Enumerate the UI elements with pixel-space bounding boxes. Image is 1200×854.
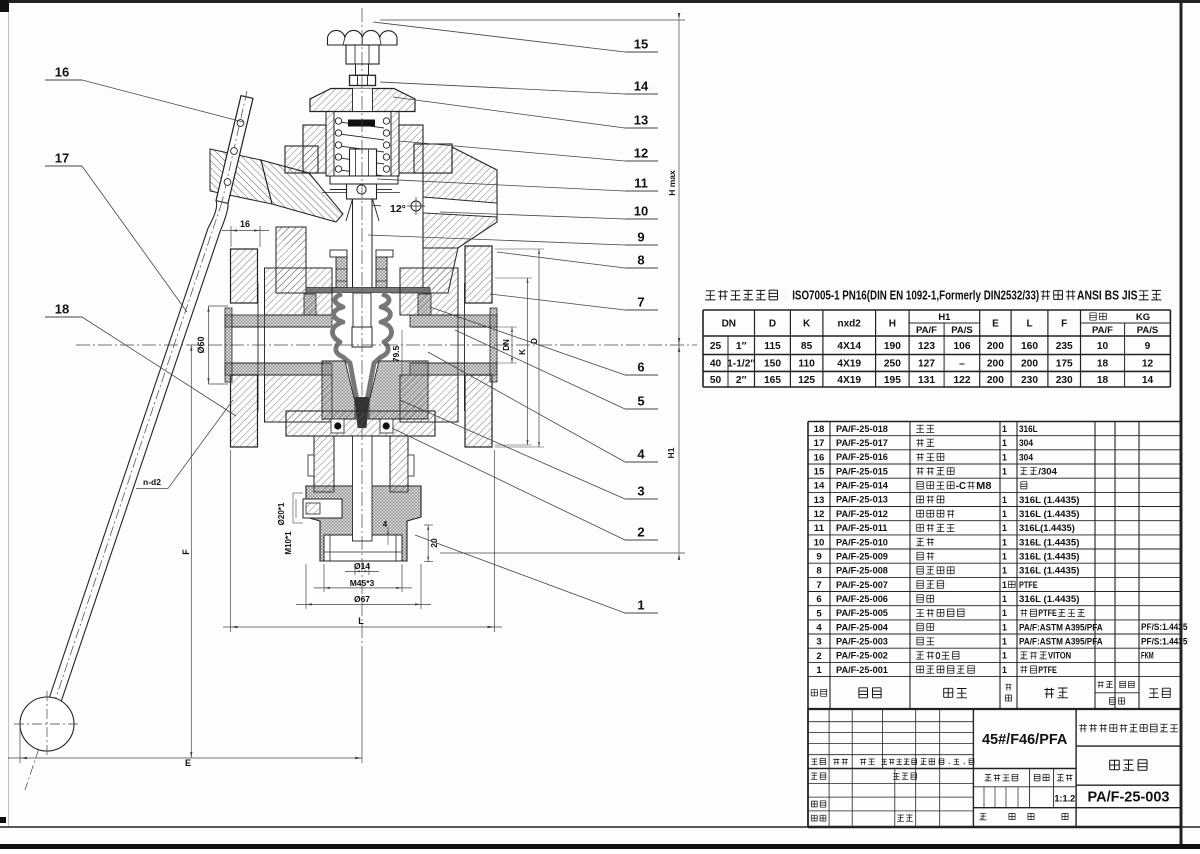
svg-text:85: 85 [801, 341, 813, 352]
svg-text:6: 6 [637, 360, 644, 375]
svg-text:PA/S: PA/S [1137, 325, 1158, 336]
svg-text:131: 131 [918, 375, 935, 386]
svg-text:PA/F-25-006: PA/F-25-006 [836, 594, 888, 604]
svg-text:D: D [769, 319, 776, 330]
svg-text:1: 1 [1002, 579, 1007, 590]
svg-text:1: 1 [1002, 437, 1007, 448]
svg-text:n-d2: n-d2 [143, 477, 161, 487]
svg-text:PA/F-25-014: PA/F-25-014 [836, 481, 889, 491]
svg-text:H1: H1 [938, 312, 951, 323]
svg-text:PA/F-25-013: PA/F-25-013 [836, 495, 888, 505]
svg-text:230: 230 [1021, 375, 1038, 386]
svg-text:PA/F-25-007: PA/F-25-007 [836, 580, 888, 590]
svg-text:16: 16 [240, 219, 250, 229]
svg-text:1: 1 [816, 665, 822, 676]
svg-text:230: 230 [1056, 375, 1073, 386]
svg-text:8: 8 [816, 566, 822, 577]
svg-text:3: 3 [637, 484, 644, 499]
svg-text:E: E [185, 758, 191, 768]
svg-text:PA/F-25-003: PA/F-25-003 [1088, 790, 1170, 806]
svg-text:H max: H max [667, 170, 677, 196]
svg-text:316L (1.4435): 316L (1.4435) [1019, 552, 1080, 562]
svg-text:F: F [1061, 319, 1067, 330]
svg-text:13: 13 [634, 113, 648, 128]
svg-text:L: L [358, 616, 364, 626]
svg-text:9: 9 [816, 552, 821, 563]
svg-text:25: 25 [710, 341, 722, 352]
svg-text:ISO7005-1 PN16(DIN EN 1092-1,F: ISO7005-1 PN16(DIN EN 1092-1,Formerly DI… [792, 289, 1039, 303]
svg-text:1: 1 [1002, 565, 1007, 576]
svg-text:4X14: 4X14 [837, 341, 861, 352]
svg-text:PA/F-25-001: PA/F-25-001 [836, 665, 888, 675]
svg-text:K: K [803, 319, 811, 330]
svg-text:1: 1 [1002, 636, 1007, 647]
svg-text:DN: DN [722, 319, 736, 330]
svg-text:106: 106 [954, 341, 971, 352]
svg-text:165: 165 [764, 375, 781, 386]
svg-text:195: 195 [884, 375, 901, 386]
svg-text:DN: DN [502, 339, 511, 351]
svg-text:125: 125 [798, 375, 815, 386]
svg-text:2″: 2″ [736, 375, 747, 386]
svg-text:18: 18 [55, 302, 69, 317]
svg-text:10: 10 [634, 204, 648, 219]
svg-text:14: 14 [814, 481, 825, 492]
svg-text:45#/F46/PFA: 45#/F46/PFA [982, 732, 1068, 748]
svg-text:200: 200 [987, 375, 1004, 386]
svg-text:4X19: 4X19 [837, 375, 861, 386]
svg-text:L: L [1026, 319, 1032, 330]
svg-text:316L(1.4435): 316L(1.4435) [1019, 523, 1075, 533]
svg-text:/304: /304 [1038, 466, 1057, 476]
svg-text:PA/F-25-015: PA/F-25-015 [836, 466, 888, 476]
svg-text:PA/F:ASTM A395/PFA: PA/F:ASTM A395/PFA [1019, 637, 1103, 647]
svg-text:10: 10 [1097, 341, 1109, 352]
svg-text:1-1/2″: 1-1/2″ [727, 359, 755, 370]
svg-text:5: 5 [637, 394, 644, 409]
svg-text:122: 122 [954, 375, 971, 386]
svg-text:1: 1 [1002, 508, 1007, 519]
svg-text:9: 9 [1145, 341, 1151, 352]
svg-text:PF/S:1.4435: PF/S:1.4435 [1141, 622, 1188, 632]
svg-text:PA/F-25-008: PA/F-25-008 [836, 566, 888, 576]
svg-text:12: 12 [634, 146, 648, 161]
svg-text:190: 190 [884, 341, 901, 352]
svg-text:PA/F:ASTM A395/PFA: PA/F:ASTM A395/PFA [1019, 622, 1103, 632]
svg-text:160: 160 [1021, 341, 1038, 352]
svg-text:PA/F-25-011: PA/F-25-011 [836, 523, 887, 533]
svg-text:13: 13 [814, 495, 825, 506]
svg-text:PA/F-25-005: PA/F-25-005 [836, 608, 888, 618]
svg-text:7: 7 [816, 580, 821, 591]
svg-text:12°: 12° [390, 203, 406, 215]
svg-text:PTFE: PTFE [1038, 665, 1057, 675]
svg-text:127: 127 [918, 359, 935, 370]
svg-text:7: 7 [637, 295, 644, 310]
svg-text:1: 1 [1002, 621, 1007, 632]
svg-text:316L (1.4435): 316L (1.4435) [1019, 594, 1080, 604]
svg-text:18: 18 [814, 424, 825, 435]
svg-text:4: 4 [637, 447, 645, 462]
svg-text:PA/F-25-017: PA/F-25-017 [836, 438, 888, 448]
svg-text:79.5: 79.5 [391, 345, 401, 362]
svg-text:ANSI BS JIS: ANSI BS JIS [1077, 289, 1138, 303]
svg-text:KG: KG [1136, 312, 1150, 323]
svg-text:Ø14: Ø14 [354, 561, 370, 571]
svg-text:O: O [935, 651, 940, 662]
svg-text:PA/F-25-002: PA/F-25-002 [836, 651, 888, 661]
svg-text:14: 14 [634, 79, 649, 94]
svg-text:50: 50 [710, 375, 722, 386]
svg-text:11: 11 [814, 523, 825, 534]
svg-text:3: 3 [816, 637, 821, 648]
svg-text:4: 4 [816, 622, 822, 633]
svg-text:PF/S:1.4435: PF/S:1.4435 [1141, 636, 1188, 646]
svg-text:1: 1 [1002, 536, 1007, 547]
svg-text:F: F [181, 549, 191, 555]
svg-text:115: 115 [764, 341, 781, 352]
svg-text:316L (1.4435): 316L (1.4435) [1019, 495, 1080, 505]
svg-text:16: 16 [814, 452, 825, 463]
svg-text:18: 18 [1097, 375, 1109, 386]
svg-text:–: – [959, 359, 965, 370]
svg-text:15: 15 [634, 37, 648, 52]
svg-text:4: 4 [383, 520, 388, 529]
svg-text:PA/F-25-003: PA/F-25-003 [836, 636, 888, 646]
svg-text:nxd2: nxd2 [838, 319, 862, 330]
svg-text:PA/F: PA/F [916, 325, 937, 336]
svg-text:M45*3: M45*3 [350, 578, 375, 588]
svg-text:4X19: 4X19 [837, 359, 861, 370]
svg-text:PTFE: PTFE [1038, 608, 1057, 618]
svg-text:E: E [992, 319, 999, 330]
svg-text:PA/F-25-012: PA/F-25-012 [836, 509, 888, 519]
svg-text:150: 150 [764, 359, 781, 370]
svg-text:PA/S: PA/S [951, 325, 972, 336]
svg-text:175: 175 [1056, 359, 1073, 370]
svg-text:304: 304 [1019, 452, 1034, 462]
svg-text:14: 14 [1142, 375, 1154, 386]
svg-text:1: 1 [1002, 494, 1007, 505]
svg-text:1: 1 [1002, 551, 1007, 562]
svg-text:Ø67: Ø67 [354, 594, 370, 604]
svg-text:20: 20 [429, 538, 439, 548]
svg-text:1: 1 [1002, 423, 1007, 434]
svg-text:K: K [518, 349, 527, 355]
svg-text:H: H [889, 319, 896, 330]
svg-text:12: 12 [814, 509, 825, 520]
svg-text:1: 1 [1002, 466, 1007, 477]
svg-text:2: 2 [637, 525, 644, 540]
svg-text:1: 1 [1002, 650, 1007, 661]
svg-text:200: 200 [987, 341, 1004, 352]
svg-text:200: 200 [987, 359, 1004, 370]
svg-text:110: 110 [798, 359, 815, 370]
svg-text:304: 304 [1019, 438, 1034, 448]
svg-text:Ø60: Ø60 [196, 336, 206, 353]
svg-text:FKM: FKM [1141, 651, 1154, 661]
svg-text:8: 8 [637, 253, 644, 268]
svg-text:10: 10 [814, 537, 825, 548]
svg-text:-C: -C [956, 481, 966, 492]
svg-text:1″: 1″ [736, 341, 747, 352]
svg-text:16: 16 [55, 65, 69, 80]
svg-text:18: 18 [1097, 359, 1109, 370]
svg-text:PA/F-25-010: PA/F-25-010 [836, 537, 888, 547]
svg-text:PA/F-25-018: PA/F-25-018 [836, 424, 888, 434]
svg-text:PA/F-25-009: PA/F-25-009 [836, 551, 888, 561]
svg-text:17: 17 [55, 151, 69, 166]
svg-text:M8: M8 [976, 481, 992, 492]
svg-text:PTFE: PTFE [1019, 580, 1038, 590]
svg-text:1: 1 [1002, 522, 1007, 533]
svg-text:17: 17 [814, 438, 825, 449]
svg-text:200: 200 [1021, 359, 1038, 370]
svg-text:1: 1 [637, 598, 644, 613]
svg-text:316L (1.4435): 316L (1.4435) [1019, 537, 1080, 547]
svg-text:Ø20*1: Ø20*1 [277, 502, 286, 525]
svg-text:PA/F-25-004: PA/F-25-004 [836, 622, 889, 632]
svg-text:PA/F-25-016: PA/F-25-016 [836, 452, 888, 462]
svg-text:H1: H1 [666, 447, 676, 458]
svg-text:11: 11 [634, 176, 648, 191]
svg-text:12: 12 [1142, 359, 1154, 370]
svg-text:1: 1 [1002, 451, 1007, 462]
svg-text:123: 123 [918, 341, 935, 352]
svg-text:M10*1: M10*1 [284, 531, 293, 555]
svg-text:40: 40 [710, 359, 722, 370]
svg-text:9: 9 [637, 230, 644, 245]
svg-text:250: 250 [884, 359, 901, 370]
svg-text:1: 1 [1002, 607, 1007, 618]
svg-text:235: 235 [1056, 341, 1073, 352]
svg-text:2: 2 [816, 651, 821, 662]
svg-text:5: 5 [816, 608, 822, 619]
svg-text:1: 1 [1002, 593, 1007, 604]
svg-text:1: 1 [1002, 664, 1007, 675]
svg-text:VITON: VITON [1048, 651, 1071, 661]
svg-text:316L (1.4435): 316L (1.4435) [1019, 509, 1080, 519]
svg-text:316L (1.4435): 316L (1.4435) [1019, 566, 1080, 576]
svg-text:316L: 316L [1019, 424, 1038, 434]
svg-text:1:1.2: 1:1.2 [1054, 793, 1075, 803]
svg-text:15: 15 [814, 467, 825, 478]
svg-text:6: 6 [816, 594, 821, 605]
svg-text:PA/F: PA/F [1092, 325, 1113, 336]
